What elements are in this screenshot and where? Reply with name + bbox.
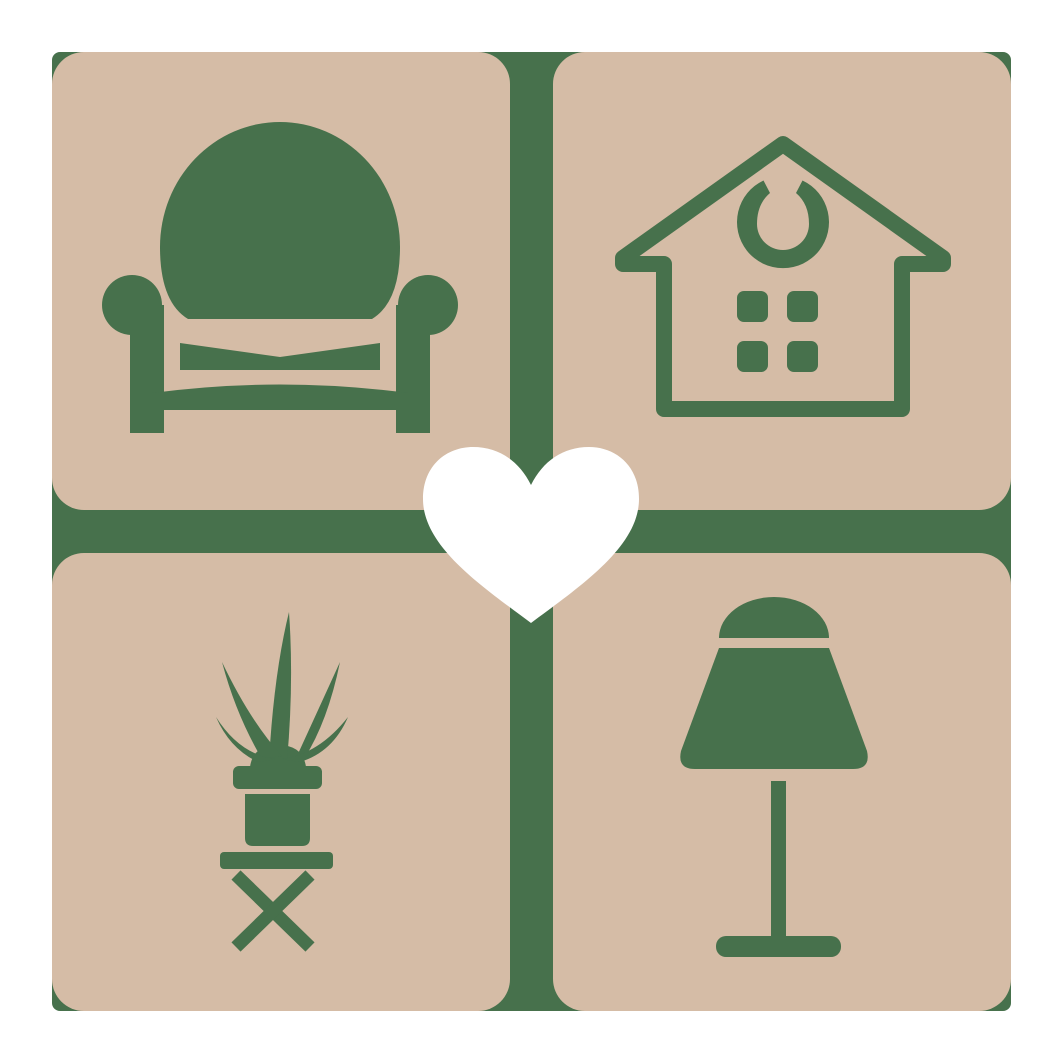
logo-canvas — [0, 0, 1063, 1063]
heart-icon — [413, 437, 649, 633]
